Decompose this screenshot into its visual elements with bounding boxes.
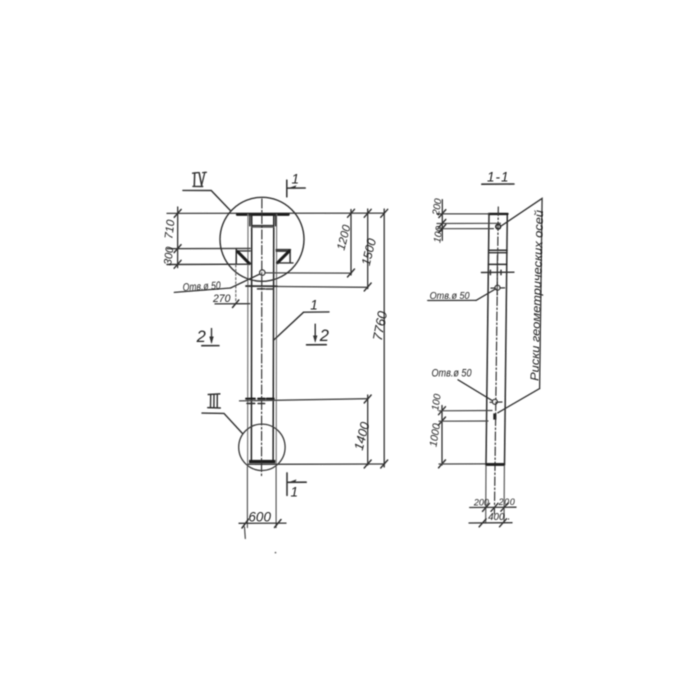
svg-text:1: 1 bbox=[310, 298, 318, 313]
svg-text:200: 200 bbox=[473, 498, 489, 508]
svg-text:710: 710 bbox=[163, 219, 177, 240]
svg-text:2: 2 bbox=[319, 327, 329, 345]
svg-text:Отв.ø 50: Отв.ø 50 bbox=[432, 368, 473, 380]
svg-text:600: 600 bbox=[248, 509, 271, 524]
svg-text:2: 2 bbox=[196, 328, 206, 346]
svg-text:200: 200 bbox=[498, 497, 516, 507]
svg-text:1: 1 bbox=[290, 485, 298, 500]
svg-text:1: 1 bbox=[292, 172, 300, 187]
svg-text:270: 270 bbox=[212, 293, 231, 305]
svg-text:400: 400 bbox=[488, 512, 505, 523]
svg-text:300: 300 bbox=[162, 245, 176, 266]
svg-text:Отв.ø 50: Отв.ø 50 bbox=[182, 280, 221, 294]
svg-text:1-1: 1-1 bbox=[487, 169, 510, 184]
svg-text:Отв.ø 50: Отв.ø 50 bbox=[430, 291, 470, 302]
